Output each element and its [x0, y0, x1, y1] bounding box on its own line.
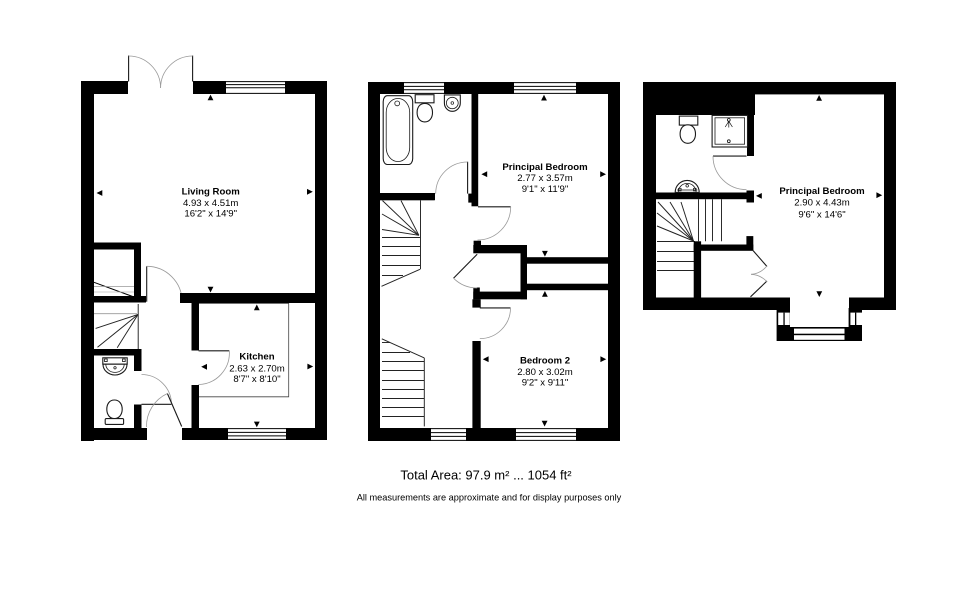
- svg-text:9'1" x 11'9": 9'1" x 11'9": [522, 184, 569, 195]
- svg-text:Total Area: 97.9 m² ... 1054 f: Total Area: 97.9 m² ... 1054 ft²: [400, 467, 572, 482]
- svg-text:16'2" x 14'9": 16'2" x 14'9": [184, 209, 237, 220]
- svg-text:All measurements are approxima: All measurements are approximate and for…: [357, 493, 622, 503]
- svg-text:9'6" x 14'6": 9'6" x 14'6": [798, 209, 845, 220]
- svg-text:Kitchen: Kitchen: [239, 351, 274, 362]
- svg-text:2.63 x 2.70m: 2.63 x 2.70m: [229, 363, 284, 374]
- svg-text:4.93 x 4.51m: 4.93 x 4.51m: [183, 198, 238, 209]
- svg-text:Principal Bedroom: Principal Bedroom: [779, 186, 864, 197]
- svg-text:2.80 x 3.02m: 2.80 x 3.02m: [517, 367, 572, 378]
- svg-text:Principal Bedroom: Principal Bedroom: [502, 162, 587, 173]
- svg-text:Living Room: Living Room: [182, 187, 240, 198]
- svg-text:2.77 x 3.57m: 2.77 x 3.57m: [517, 173, 572, 184]
- svg-text:Bedroom 2: Bedroom 2: [520, 356, 570, 367]
- svg-text:2.90 x 4.43m: 2.90 x 4.43m: [794, 198, 849, 209]
- svg-text:9'2" x 9'11": 9'2" x 9'11": [522, 377, 569, 388]
- svg-text:8'7" x 8'10": 8'7" x 8'10": [233, 374, 280, 385]
